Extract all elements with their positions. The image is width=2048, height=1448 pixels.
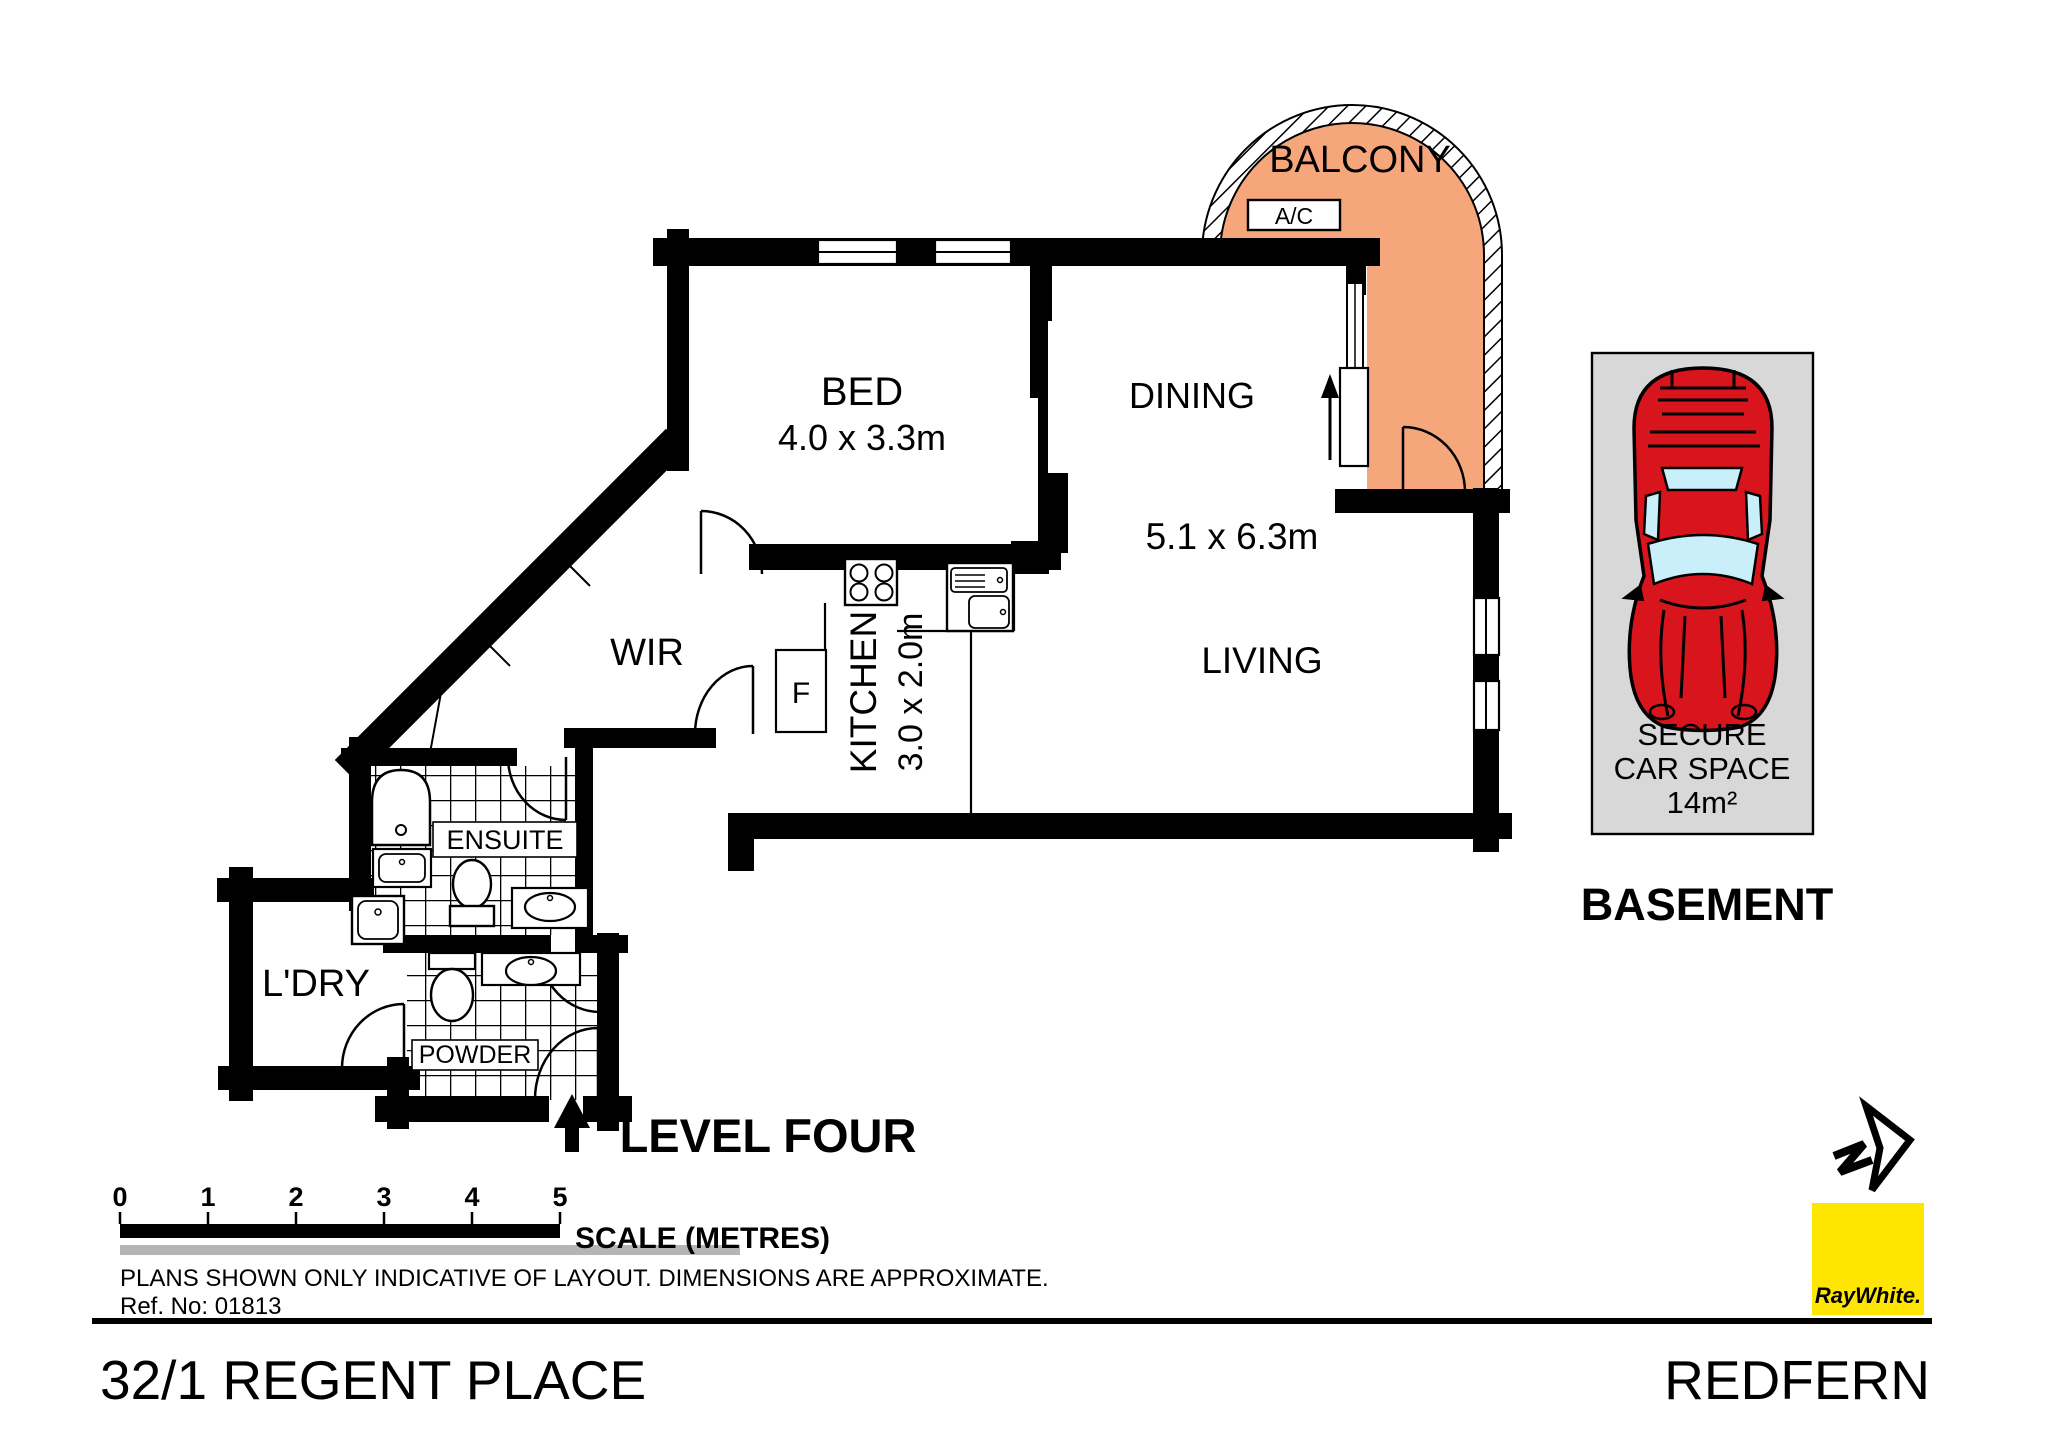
raywhite-logo-text: RayWhite. [1815,1283,1921,1308]
scale-bar: 0 1 2 3 4 5 SCALE (METRES) [112,1182,830,1255]
bed-window-1 [818,240,897,264]
car-space-line3: 14m² [1667,785,1738,820]
ensuite-label: ENSUITE [446,825,563,855]
living-window-2 [1474,681,1499,730]
ac-unit: A/C [1248,200,1340,230]
north-arrow-icon [1834,1106,1910,1190]
powder-label-box: POWDER [412,1040,538,1070]
scale-tick-0: 0 [112,1182,127,1212]
scale-tick-4: 4 [464,1182,479,1212]
powder-toilet-icon [429,953,475,1021]
raywhite-logo: RayWhite. [1812,1203,1924,1315]
car-space-line2: CAR SPACE [1614,751,1791,786]
stove-icon [845,559,897,605]
scale-tick-3: 3 [376,1182,391,1212]
footer-address: 32/1 REGENT PLACE [100,1349,646,1411]
ensuite-basin-icon [512,888,588,928]
scale-label: SCALE (METRES) [575,1222,830,1255]
scale-bar-black [120,1224,560,1238]
bed-window-2 [935,240,1011,264]
car-icon [1624,368,1782,731]
ensuite-toilet-icon [450,860,494,926]
powder-label: POWDER [419,1041,532,1069]
disclaimer-text: PLANS SHOWN ONLY INDICATIVE OF LAYOUT. D… [120,1265,1049,1292]
footer-rule [92,1318,1932,1324]
laundry-tub-icon [352,896,404,944]
living-dims: 5.1 x 6.3m [1146,516,1319,557]
living-window-1 [1474,598,1499,655]
kitchen-dims: 3.0 x 2.0m [892,613,930,772]
wir-door [695,666,753,734]
wir-label: WIR [610,632,684,674]
car-space: SECURE CAR SPACE 14m² [1592,353,1813,834]
bed-dims: 4.0 x 3.3m [778,417,946,458]
living-label: LIVING [1201,640,1322,681]
scale-tick-2: 2 [288,1182,303,1212]
sink-icon [947,563,1013,631]
ref-no: Ref. No: 01813 [120,1293,281,1320]
footer-suburb: REDFERN [1664,1349,1930,1411]
powder-basin-icon [482,953,580,985]
scale-tick-5: 5 [552,1182,567,1212]
laundry-label: L'DRY [262,963,370,1005]
floorplan-canvas: A/C BALCONY BED 4.0 x 3.3m DINING 5.1 x … [0,0,2048,1448]
balcony-label: BALCONY [1269,139,1451,181]
dining-label: DINING [1129,375,1255,416]
balcony-sliding-door [1340,283,1368,466]
balcony-slide-arrow [1321,374,1339,460]
kitchen-label: KITCHEN [843,611,884,773]
ensuite-vanity-square [373,849,431,887]
ensuite-label-box: ENSUITE [433,822,577,857]
level-label: LEVEL FOUR [620,1109,917,1162]
basement-label: BASEMENT [1581,879,1834,930]
fridge-label: F [792,677,810,710]
car-space-line1: SECURE [1637,717,1766,752]
scale-tick-1: 1 [200,1182,215,1212]
ac-label: A/C [1275,203,1313,229]
floorplan-page: A/C BALCONY BED 4.0 x 3.3m DINING 5.1 x … [0,0,2048,1448]
bed-label: BED [821,370,903,414]
